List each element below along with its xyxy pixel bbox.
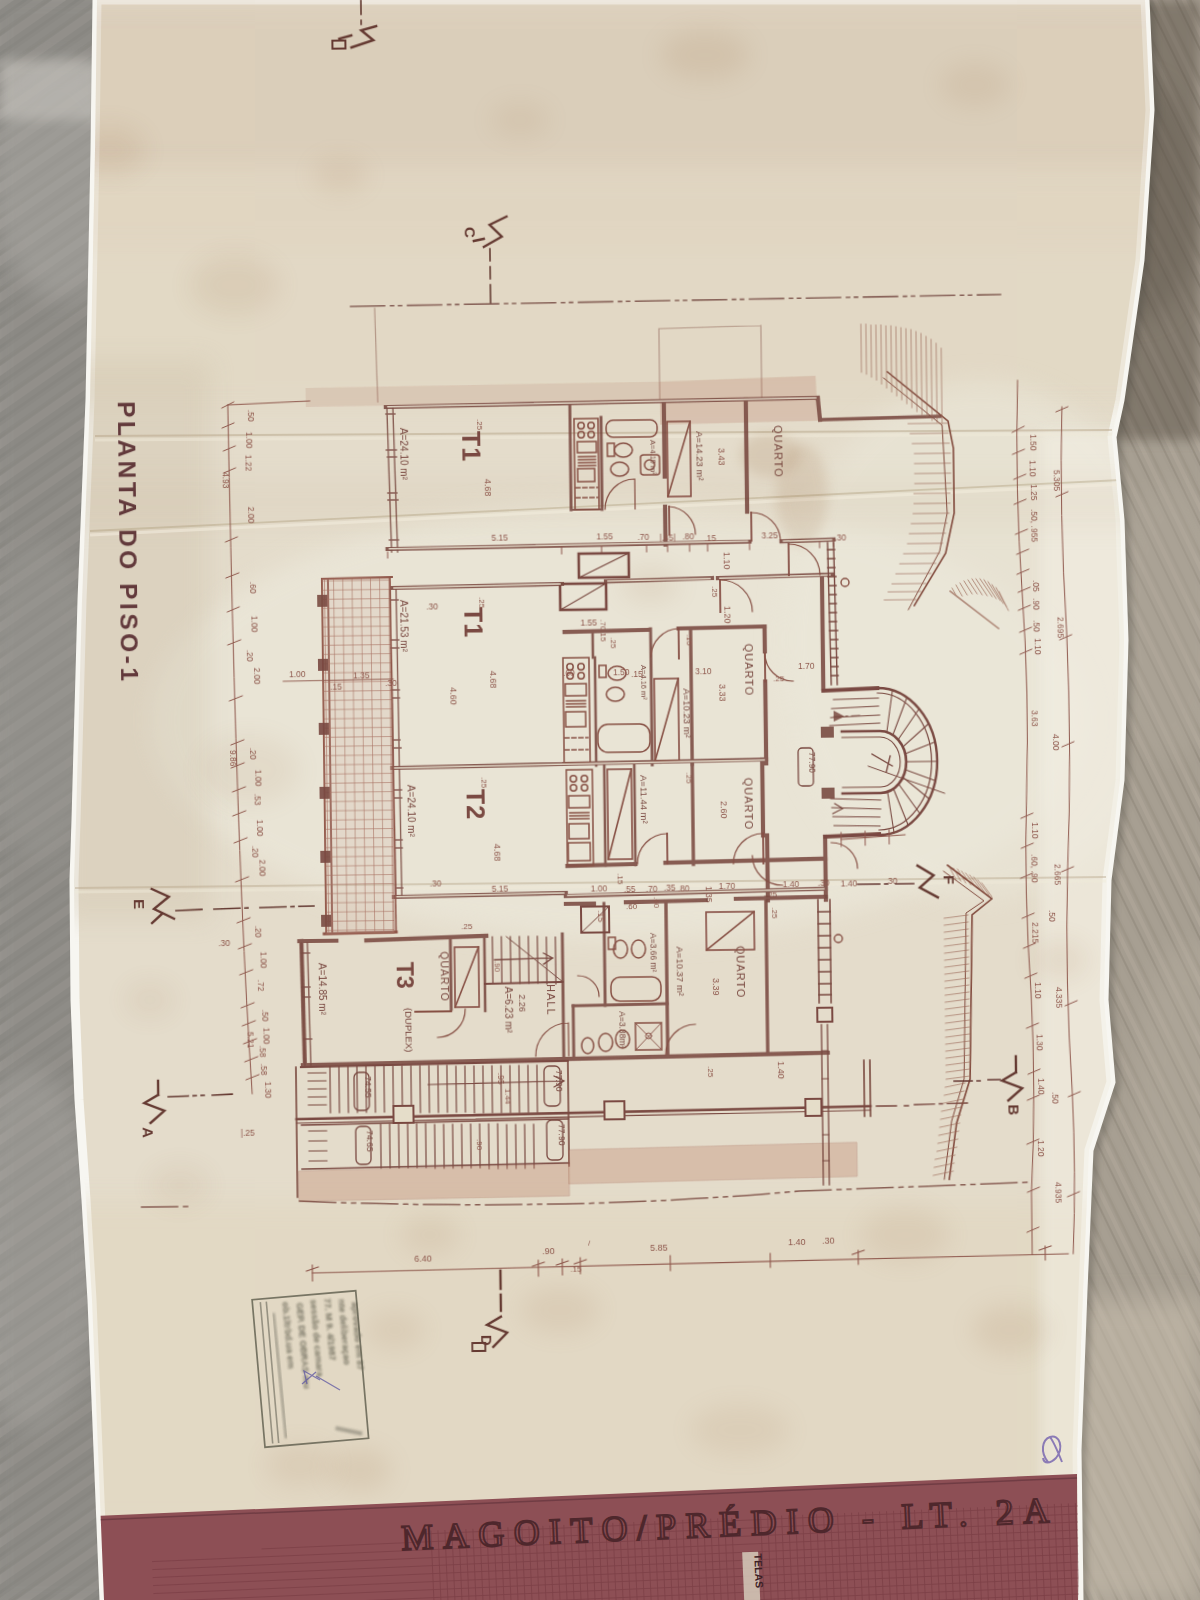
svg-text:.25: .25	[461, 922, 473, 931]
svg-text:.30: .30	[426, 601, 438, 611]
svg-text:T2: T2	[462, 789, 490, 821]
svg-text:4.935: 4.935	[1053, 1182, 1063, 1204]
svg-text:T1: T1	[459, 607, 487, 639]
svg-text:.30: .30	[818, 878, 830, 888]
svg-text:.58: .58	[258, 1046, 268, 1058]
svg-text:.60: .60	[626, 902, 638, 911]
svg-text:4.60: 4.60	[448, 687, 458, 705]
svg-text:.50, .955: .50, .955	[1029, 509, 1039, 542]
svg-text:1.44: 1.44	[503, 1089, 512, 1105]
svg-text:1.00: 1.00	[258, 952, 268, 969]
svg-text:C: C	[462, 227, 479, 238]
svg-text:.25: .25	[609, 637, 618, 649]
svg-text:4.93: 4.93	[221, 472, 231, 489]
svg-text:A=3.38m²: A=3.38m²	[617, 1011, 627, 1048]
svg-text:A=10.23 m²: A=10.23 m²	[681, 688, 693, 738]
svg-text:1.55: 1.55	[580, 617, 597, 627]
svg-text:.60, .90: .60, .90	[1029, 854, 1039, 883]
svg-text:77.90: 77.90	[557, 1124, 567, 1146]
svg-text:.35: .35	[664, 883, 676, 893]
svg-text:QUARTO: QUARTO	[438, 951, 451, 1002]
svg-text:2.26: 2.26	[517, 994, 527, 1012]
svg-text:.15: .15	[685, 634, 694, 646]
svg-text:.58: .58	[259, 1064, 269, 1076]
svg-text:QUARTO: QUARTO	[742, 778, 755, 831]
svg-text:6.40: 6.40	[414, 1254, 432, 1264]
svg-text:1.70: 1.70	[798, 661, 815, 671]
svg-text:3.33: 3.33	[717, 684, 727, 702]
svg-text:1.22: 1.22	[243, 455, 253, 472]
svg-text:QUARTO: QUARTO	[743, 644, 756, 697]
svg-text:1.00: 1.00	[261, 1027, 271, 1044]
svg-text:1.00: 1.00	[253, 770, 263, 787]
svg-text:PLANTA DO PISO-1: PLANTA DO PISO-1	[113, 401, 143, 685]
svg-text:A: A	[140, 1127, 157, 1138]
svg-text:.55: .55	[624, 884, 636, 894]
svg-text:.25: .25	[475, 419, 484, 431]
svg-text:.50: .50	[1031, 620, 1041, 632]
svg-text:3.25: 3.25	[761, 530, 778, 540]
svg-text:1.30: 1.30	[263, 1081, 273, 1098]
svg-text:.30: .30	[430, 878, 442, 888]
svg-text:.70: .70	[637, 532, 649, 542]
svg-text:74.55: 74.55	[363, 1076, 373, 1098]
svg-text:4.00: 4.00	[1051, 734, 1061, 751]
svg-text:1.00: 1.00	[591, 883, 608, 893]
svg-text:.20: .20	[245, 650, 255, 662]
svg-text:.20: .20	[248, 748, 258, 760]
svg-text:A=14.23 m²: A=14.23 m²	[694, 431, 706, 481]
svg-text:4.68: 4.68	[492, 844, 502, 862]
svg-text:D: D	[478, 1335, 495, 1346]
svg-text:.60: .60	[652, 897, 661, 909]
svg-text:.50: .50	[1047, 910, 1057, 922]
svg-text:4.68: 4.68	[488, 671, 498, 689]
svg-text:1.20: 1.20	[722, 606, 732, 624]
svg-text:.25: .25	[706, 1066, 715, 1078]
svg-text:T1: T1	[457, 431, 485, 463]
svg-text:4.68: 4.68	[483, 479, 493, 497]
svg-text:1.00: 1.00	[249, 616, 259, 633]
svg-text:(DUPLEX): (DUPLEX)	[403, 1008, 415, 1052]
svg-text:A=24.10 m²: A=24.10 m²	[405, 785, 417, 838]
svg-text:5.85: 5.85	[650, 1243, 668, 1253]
svg-text:.15: .15	[570, 1265, 582, 1274]
svg-text:.25: .25	[684, 772, 693, 784]
svg-text:1.10: 1.10	[1030, 822, 1040, 839]
svg-text:3.10: 3.10	[695, 666, 712, 676]
svg-text:2.00: 2.00	[257, 860, 267, 877]
svg-text:A=21.53 m²: A=21.53 m²	[398, 600, 410, 653]
svg-text:.20: .20	[250, 846, 260, 858]
svg-text:.60: .60	[248, 582, 258, 594]
svg-text:5.15: 5.15	[491, 533, 508, 543]
svg-text:1.10: 1.10	[1033, 982, 1043, 999]
svg-text:1.40: 1.40	[788, 1237, 806, 1247]
svg-text:3.43: 3.43	[716, 448, 726, 466]
svg-text:3.63: 3.63	[1030, 710, 1040, 727]
svg-text:2.215: 2.215	[1030, 922, 1040, 944]
svg-text:T3: T3	[392, 962, 418, 989]
svg-text:2.695: 2.695	[1055, 617, 1065, 639]
svg-text:1.10: 1.10	[1028, 460, 1038, 477]
svg-text:1.10: 1.10	[1033, 638, 1043, 655]
svg-text:1.70: 1.70	[719, 881, 736, 891]
svg-text:.30: .30	[822, 1236, 835, 1246]
svg-text:A=10.37 m²: A=10.37 m²	[674, 946, 686, 996]
svg-text:1.00: 1.00	[255, 820, 265, 837]
svg-text:1.50: 1.50	[1028, 434, 1038, 451]
svg-text:1.25: 1.25	[1029, 484, 1039, 501]
svg-text:QUARTO: QUARTO	[772, 425, 785, 478]
svg-text:1.50: 1.50	[613, 667, 630, 677]
svg-text:A=11.44 m²: A=11.44 m²	[638, 775, 650, 824]
svg-text:.90: .90	[542, 1246, 555, 1256]
svg-text:.15: .15	[330, 682, 342, 692]
svg-text:.70: .70	[646, 884, 658, 894]
svg-text:QUARTO: QUARTO	[734, 946, 747, 999]
svg-text:F: F	[941, 875, 958, 884]
svg-text:1.00: 1.00	[289, 669, 306, 679]
svg-text:.25: .25	[477, 597, 486, 609]
svg-text:.25: .25	[710, 586, 719, 598]
svg-text:TELAS: TELAS	[752, 1553, 765, 1588]
svg-text:.20: .20	[253, 926, 263, 938]
svg-text:2.60: 2.60	[719, 801, 729, 819]
svg-text:1.35: 1.35	[353, 670, 370, 680]
svg-text:A=6.23 m²: A=6.23 m²	[503, 987, 515, 1034]
svg-text:1.00: 1.00	[244, 432, 254, 449]
svg-text:.50: .50	[260, 1010, 270, 1022]
svg-text:A=14.85 m²: A=14.85 m²	[317, 963, 329, 1016]
svg-text:A=3.66 m²: A=3.66 m²	[648, 933, 658, 973]
svg-text:3.39: 3.39	[711, 978, 721, 996]
svg-text:5.305: 5.305	[1052, 470, 1062, 492]
svg-text:.05: .05	[1031, 580, 1041, 592]
svg-text:.90: .90	[493, 961, 502, 973]
svg-text:A=4.19 m²: A=4.19 m²	[648, 440, 657, 475]
svg-text:HALL: HALL	[545, 984, 557, 1016]
svg-text:.25: .25	[770, 907, 779, 919]
svg-text:2.00: 2.00	[246, 507, 256, 524]
svg-text:.80: .80	[682, 531, 694, 541]
svg-text:.15: .15	[631, 669, 643, 679]
svg-text:.25: .25	[773, 674, 785, 683]
svg-text:.70.15: .70.15	[598, 619, 607, 642]
svg-text:4.335: 4.335	[1054, 987, 1064, 1009]
svg-text:.30: .30	[834, 532, 846, 542]
svg-text:1.30: 1.30	[1035, 1034, 1045, 1051]
svg-text:.72: .72	[256, 980, 266, 992]
svg-text:1.40: 1.40	[841, 878, 858, 888]
svg-text:1.40: 1.40	[783, 879, 800, 889]
svg-text:|.45|: |.45|	[659, 533, 675, 543]
svg-text:1.10: 1.10	[722, 552, 732, 570]
svg-text:.50: .50	[246, 410, 256, 422]
svg-text:74.65: 74.65	[365, 1130, 375, 1152]
svg-text:1.40: 1.40	[776, 1061, 786, 1079]
svg-text:1.40: 1.40	[1036, 1078, 1046, 1095]
svg-text:1.55: 1.55	[596, 531, 613, 541]
svg-text:.15: .15	[596, 910, 606, 922]
svg-text:.25: .25	[479, 777, 488, 789]
svg-text:.53: .53	[253, 794, 263, 806]
svg-text:.30: .30	[218, 938, 230, 948]
svg-text:77.90: 77.90	[807, 752, 817, 773]
svg-text:.90: .90	[475, 1139, 484, 1151]
svg-text:E: E	[131, 899, 148, 909]
svg-text:9.86: 9.86	[228, 750, 238, 767]
svg-text:.15: .15	[616, 873, 625, 885]
svg-text:|.25: |.25	[241, 1128, 255, 1138]
svg-text:5.15: 5.15	[492, 884, 509, 894]
svg-text:1.20: 1.20	[1036, 1140, 1046, 1157]
svg-text:5.21: 5.21	[245, 1032, 255, 1049]
svg-text:2.665: 2.665	[1052, 864, 1062, 886]
svg-text:.50: .50	[1050, 1092, 1060, 1104]
svg-text:.60: .60	[563, 668, 575, 678]
svg-text:.90: .90	[1031, 598, 1041, 610]
svg-text:2.00: 2.00	[252, 668, 262, 685]
svg-text:A=24.10 m²: A=24.10 m²	[398, 428, 410, 481]
svg-text:B: B	[1005, 1104, 1022, 1115]
